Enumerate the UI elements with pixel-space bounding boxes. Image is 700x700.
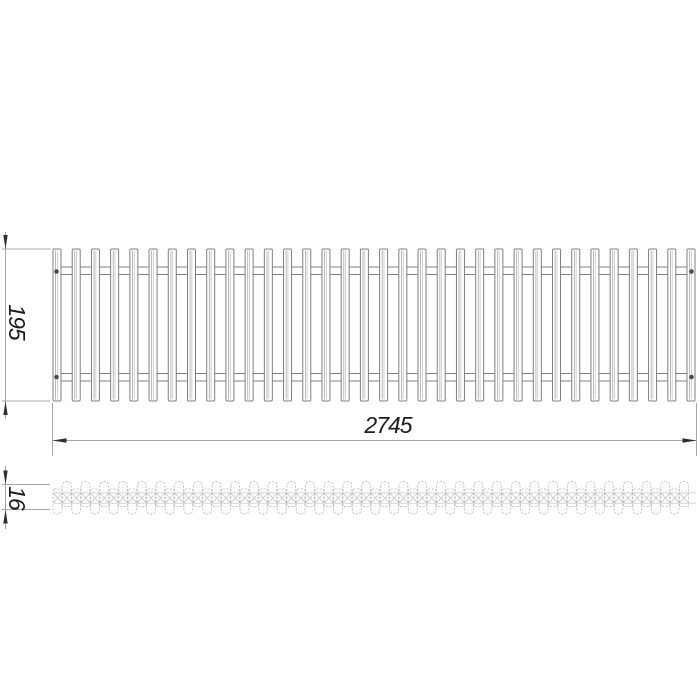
grille-slat	[380, 249, 388, 401]
arrow-up-icon	[3, 401, 7, 415]
dimension-length: 2745	[53, 403, 697, 456]
dimension-thickness-label: 16	[4, 486, 30, 511]
grille-section-view	[53, 482, 696, 515]
dimension-height: 195	[2, 232, 50, 419]
arrow-right-icon	[683, 438, 697, 442]
grille-slat	[476, 249, 484, 401]
screw-icon	[689, 269, 694, 274]
dimension-height-label: 195	[4, 304, 30, 341]
grille-slat	[130, 249, 138, 401]
grille-plan-view	[53, 249, 695, 401]
screw-icon	[689, 375, 694, 380]
grille-slat	[226, 249, 234, 401]
dimension-length-label: 2745	[363, 412, 412, 438]
technical-drawing-sheet: 195 2745 16	[0, 0, 700, 700]
dimension-thickness: 16	[2, 466, 50, 529]
screw-icon	[54, 375, 59, 380]
grille-slat	[168, 249, 176, 401]
screw-icon	[54, 269, 59, 274]
grille-slat	[284, 249, 292, 401]
arrow-left-icon	[53, 438, 67, 442]
arrow-down-icon	[3, 235, 7, 249]
arrow-up-icon	[3, 510, 7, 524]
arrow-down-icon	[3, 471, 7, 485]
